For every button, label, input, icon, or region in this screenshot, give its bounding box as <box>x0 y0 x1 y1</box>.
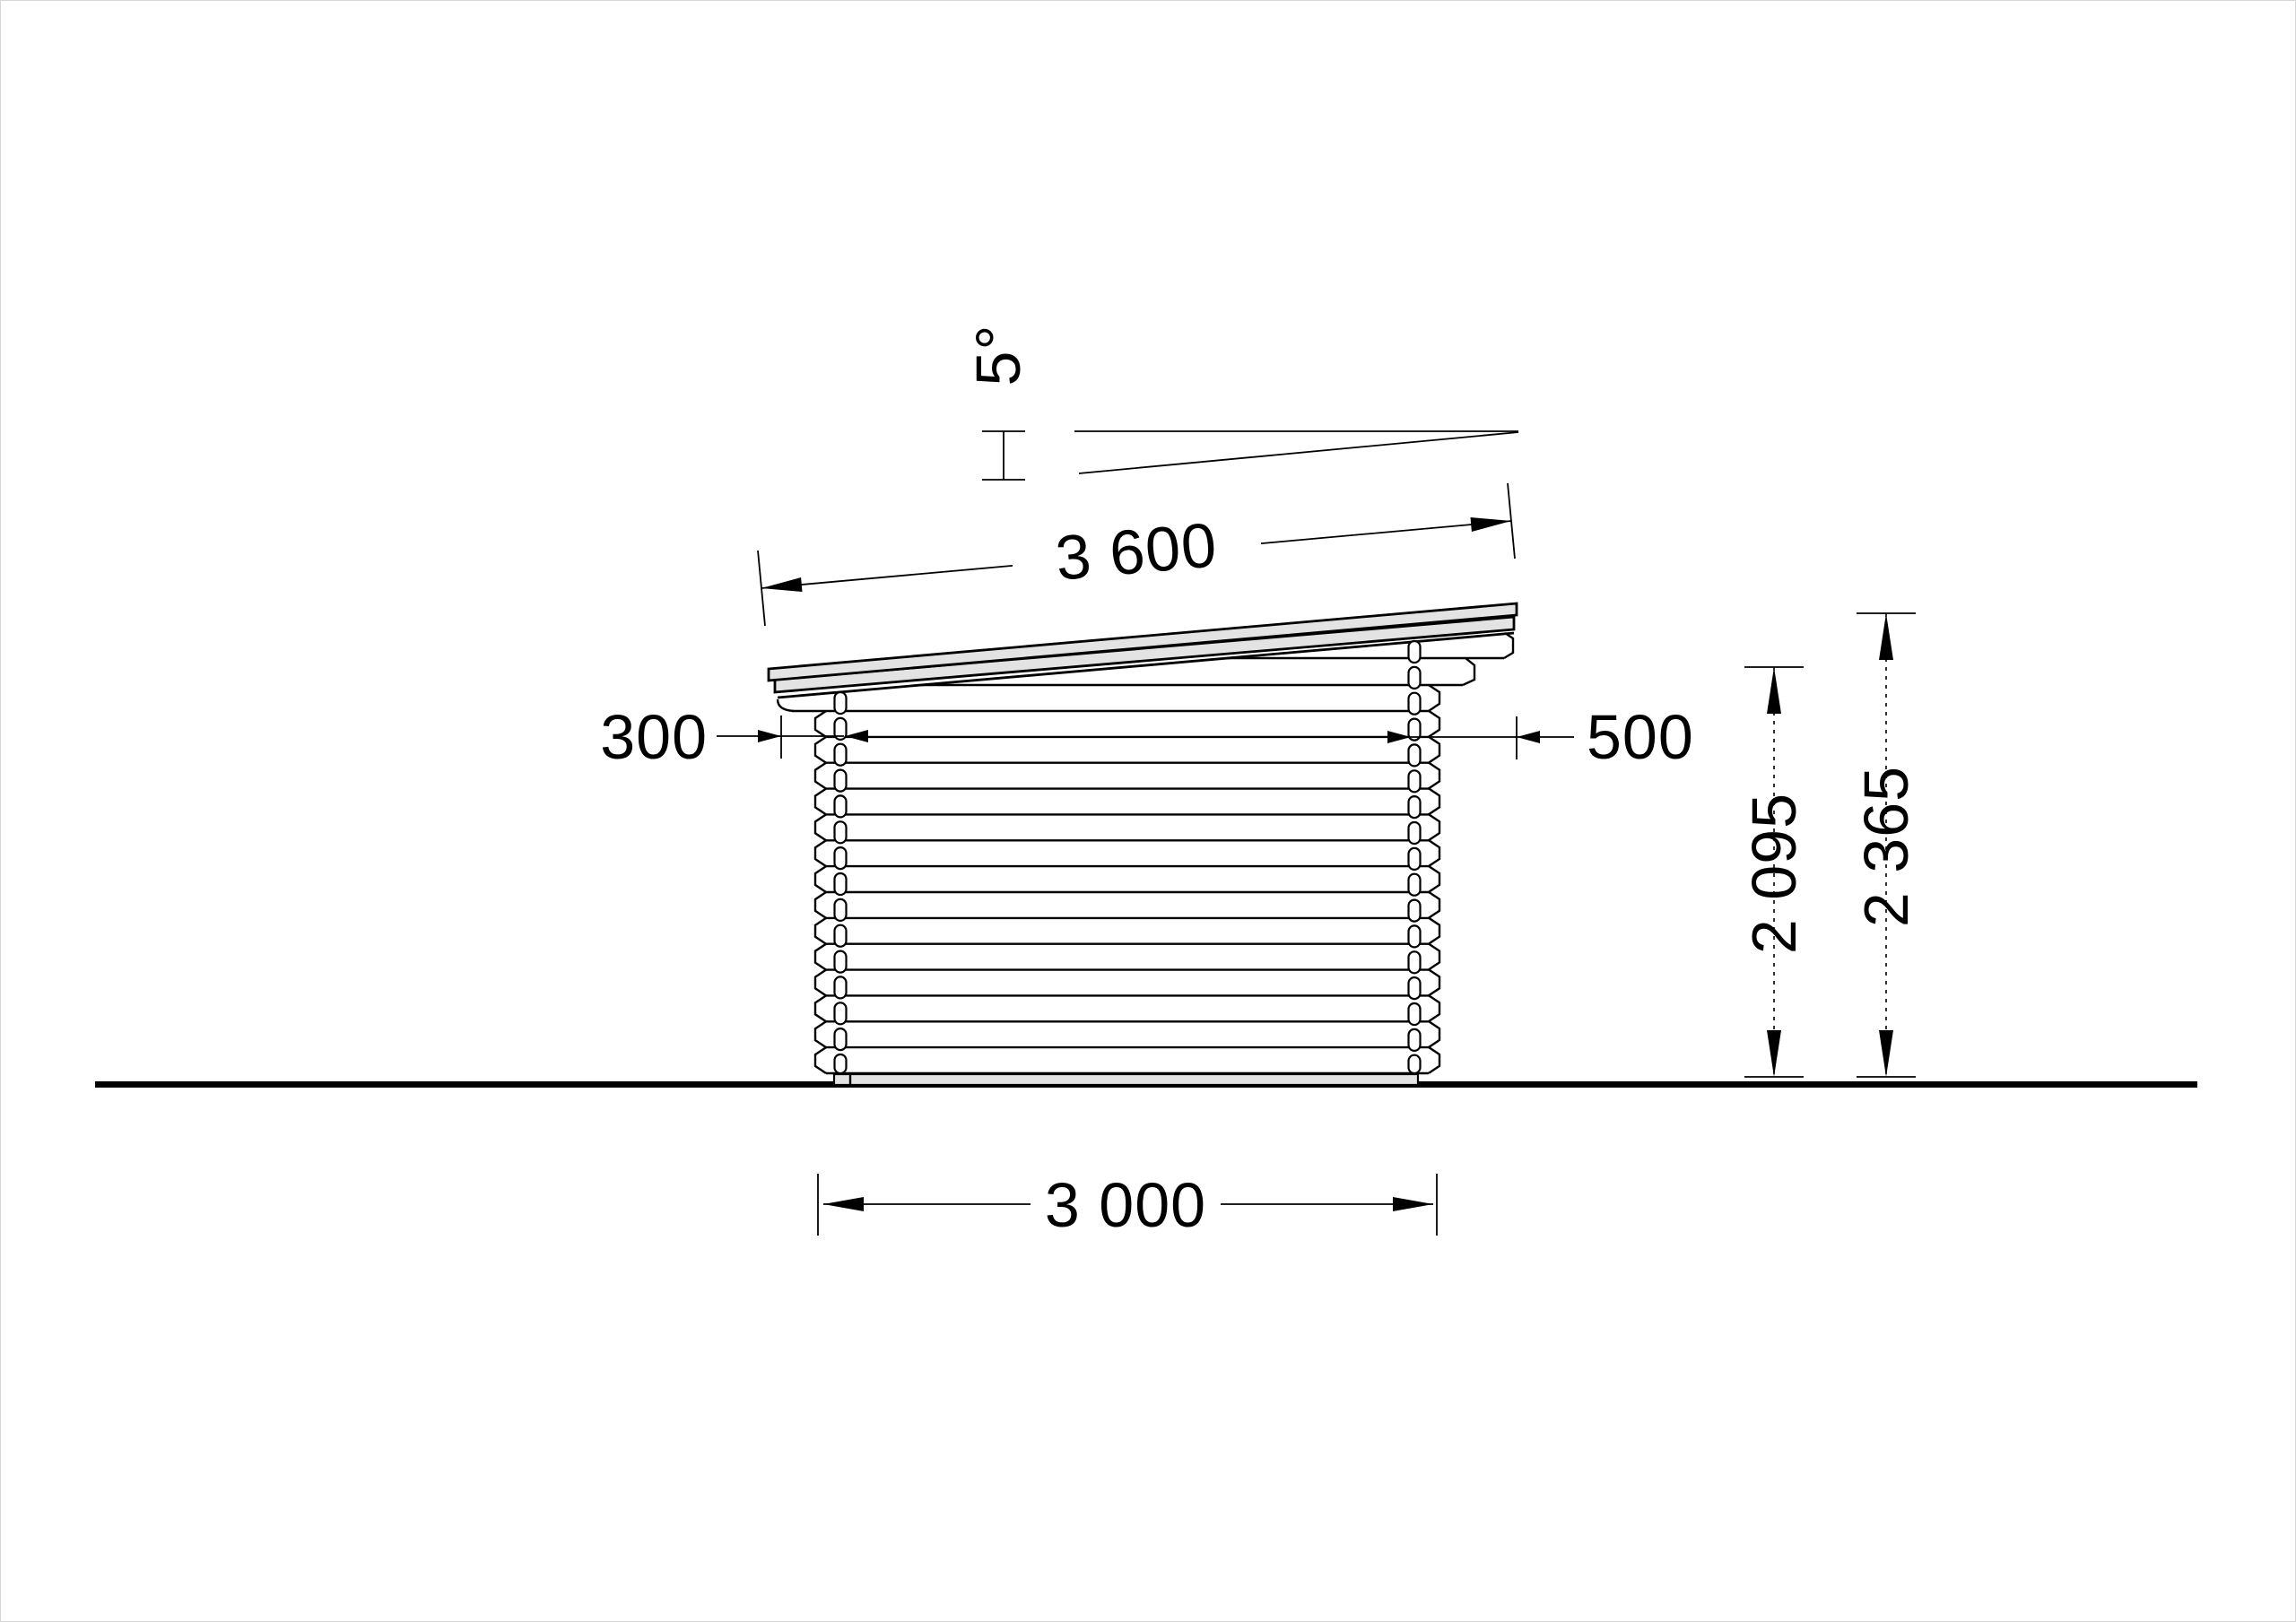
log-end-capsule <box>835 976 847 998</box>
elevation-drawing: 5° 3 600 300 500 3 000 <box>1 1 2296 1622</box>
wall-edge-left <box>815 711 826 1073</box>
right-overhang-label: 500 <box>1587 702 1694 772</box>
base-width-label: 3 000 <box>1045 1170 1206 1240</box>
left-overhang-label: 300 <box>600 702 708 772</box>
log-end-capsule <box>1409 874 1421 896</box>
purlin-end-lower <box>1463 658 1474 685</box>
purlin-end-upper <box>1504 633 1513 658</box>
log-end-capsule <box>835 847 847 869</box>
log-end-capsule <box>1409 900 1421 922</box>
dim-base-width: 3 000 <box>818 1170 1437 1240</box>
log-end-capsule <box>835 951 847 973</box>
roof-angle-annotation: 5° <box>963 325 1518 480</box>
dim-right-overhang: 500 <box>1387 702 1694 772</box>
corner-log-ends-right <box>1409 641 1421 1073</box>
log-end-capsule <box>835 795 847 817</box>
dim-total-height: 2 365 <box>1851 613 1921 1077</box>
floor-beam <box>834 1074 1418 1085</box>
log-end-capsule <box>835 873 847 895</box>
log-end-capsule <box>835 899 847 921</box>
log-end-capsule <box>835 692 847 714</box>
wall-log-lines <box>826 737 1429 1047</box>
roof-angle-label: 5° <box>963 325 1033 386</box>
wall-height-label: 2 095 <box>1739 793 1809 954</box>
drawing-canvas: 5° 3 600 300 500 3 000 <box>0 0 2296 1622</box>
log-end-capsule <box>835 744 847 766</box>
corner-log-ends-left <box>835 692 847 1073</box>
log-end-capsule <box>1409 822 1421 844</box>
roof-length-label: 3 600 <box>1053 509 1220 594</box>
log-end-capsule <box>835 821 847 843</box>
wall-edge-right <box>1429 685 1439 1073</box>
log-end-capsule <box>835 1054 847 1073</box>
roof-fascia-board <box>775 617 1514 692</box>
log-end-capsule <box>1409 1055 1421 1073</box>
log-end-capsule <box>1409 951 1421 973</box>
log-end-capsule <box>1409 770 1421 792</box>
log-end-capsule <box>1409 977 1421 999</box>
log-end-capsule <box>1409 744 1421 766</box>
log-end-capsule <box>1409 848 1421 870</box>
total-height-label: 2 365 <box>1851 766 1921 927</box>
log-end-capsule <box>1409 1029 1421 1051</box>
log-end-capsule <box>835 925 847 947</box>
log-end-capsule <box>1409 641 1421 663</box>
log-end-capsule <box>1409 1003 1421 1025</box>
log-end-capsule <box>835 770 847 792</box>
log-end-capsule <box>835 1028 847 1050</box>
log-end-capsule <box>1409 693 1421 715</box>
log-end-capsule <box>835 1002 847 1024</box>
log-end-capsule <box>1409 796 1421 818</box>
dim-wall-height: 2 095 <box>1739 667 1809 1077</box>
log-end-capsule <box>1409 925 1421 947</box>
dim-roof-length: 3 600 <box>758 483 1515 626</box>
log-end-capsule <box>1409 667 1421 689</box>
eave-end-left <box>778 699 794 711</box>
